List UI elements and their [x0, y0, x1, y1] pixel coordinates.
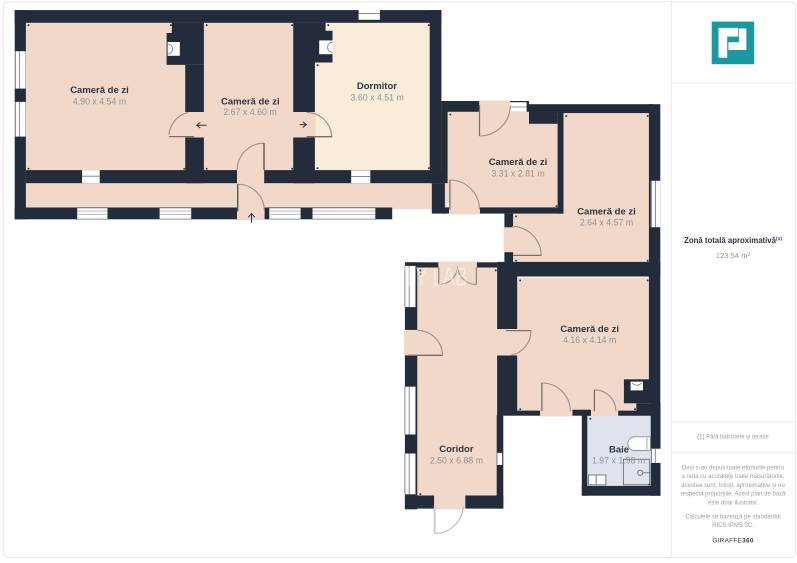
svg-text:Dormitor: Dormitor — [357, 81, 397, 92]
svg-text:2.64 x 4.57 m: 2.64 x 4.57 m — [580, 217, 633, 227]
svg-text:Coridor: Coridor — [439, 444, 474, 455]
svg-text:4.90 x 4.54 m: 4.90 x 4.54 m — [73, 96, 126, 106]
svg-text:este doar ilustrativ.: este doar ilustrativ. — [708, 500, 758, 506]
svg-text:2.50 x 6.88 m: 2.50 x 6.88 m — [430, 455, 483, 465]
svg-text:Cameră de zi: Cameră de zi — [560, 324, 619, 335]
svg-text:123.54 m²: 123.54 m² — [716, 251, 751, 260]
svg-text:a reda cu acuratețe toate măsu: a reda cu acuratețe toate măsurătorile, — [681, 474, 784, 480]
svg-text:Zonă totală aproximativă(1): Zonă totală aproximativă(1) — [684, 236, 782, 245]
svg-text:acestea sunt, totuși, aproxima: acestea sunt, totuși, aproximative și nu — [681, 483, 784, 489]
svg-text:Calculele se bazează pe standa: Calculele se bazează pe standardul — [685, 515, 780, 521]
svg-text:4.16 x 4.14 m: 4.16 x 4.14 m — [563, 335, 616, 345]
svg-text:Deși s-au depus toate eforturi: Deși s-au depus toate eforturile pentru — [682, 466, 784, 472]
svg-text:(1) Fără balcoane și terase: (1) Fără balcoane și terase — [697, 435, 769, 441]
svg-text:GIRAFFE360: GIRAFFE360 — [712, 538, 754, 545]
svg-text:respectă proporțiile. Acest pl: respectă proporțiile. Acest plan de bază — [680, 492, 786, 498]
svg-text:Cameră de zi: Cameră de zi — [489, 157, 548, 168]
svg-text:Cameră de zi: Cameră de zi — [577, 206, 636, 217]
svg-text:Cameră de zi: Cameră de zi — [70, 85, 129, 96]
svg-text:CITY LAB: CITY LAB — [386, 264, 468, 292]
svg-text:1.97 x 1.98 m: 1.97 x 1.98 m — [592, 456, 645, 466]
svg-text:3.60 x 4.51 m: 3.60 x 4.51 m — [351, 92, 404, 102]
svg-text:RICS IPMS 3C.: RICS IPMS 3C. — [712, 523, 754, 529]
svg-text:3.31 x 2.81 m: 3.31 x 2.81 m — [491, 168, 544, 178]
svg-text:2.67 x 4.60 m: 2.67 x 4.60 m — [223, 107, 276, 117]
svg-text:Baie: Baie — [609, 445, 629, 456]
